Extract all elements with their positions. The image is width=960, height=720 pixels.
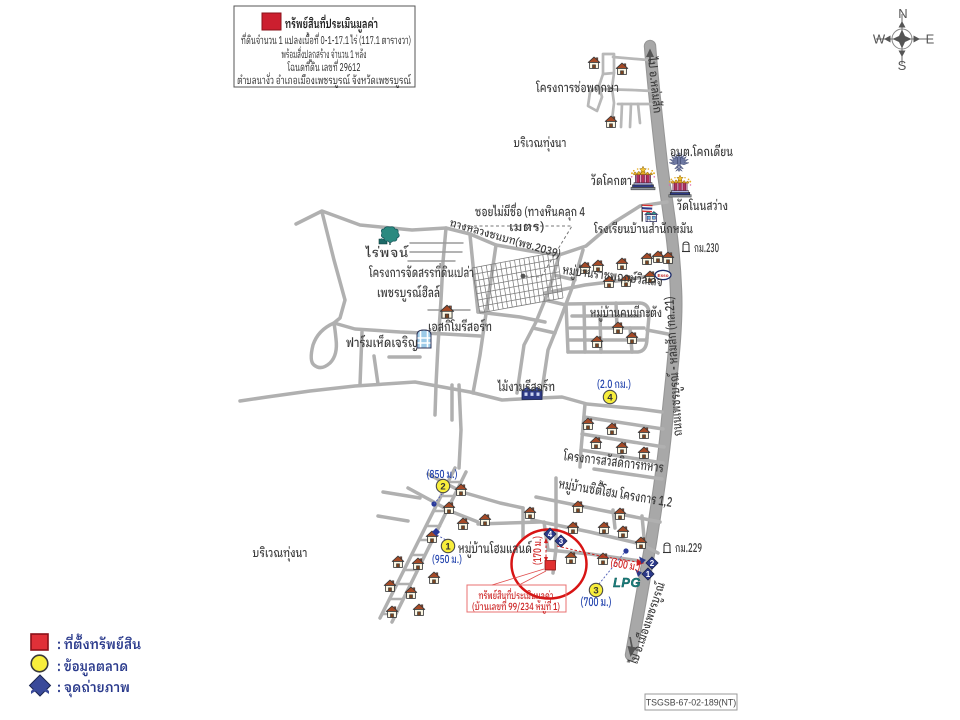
svg-text:4: 4	[548, 530, 553, 539]
svg-text:N: N	[898, 6, 907, 21]
svg-text:4: 4	[607, 392, 613, 403]
svg-text:LPG: LPG	[613, 575, 641, 590]
svg-text:1: 1	[445, 541, 451, 552]
svg-text:S: S	[898, 58, 907, 73]
svg-text:W: W	[873, 32, 886, 47]
svg-text:E: E	[926, 32, 935, 47]
svg-text:TSGSB-67-02-189(NT): TSGSB-67-02-189(NT)	[646, 698, 737, 708]
svg-text:2: 2	[650, 559, 655, 568]
svg-text:1: 1	[646, 570, 651, 579]
svg-text:3: 3	[559, 537, 564, 546]
svg-text:2: 2	[440, 481, 445, 492]
svg-text:3: 3	[593, 585, 598, 596]
